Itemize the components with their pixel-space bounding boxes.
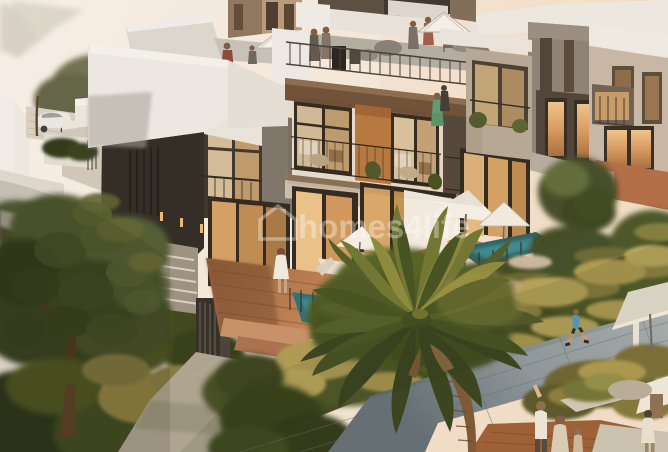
svg-text:homes4life: homes4life [298,208,470,245]
